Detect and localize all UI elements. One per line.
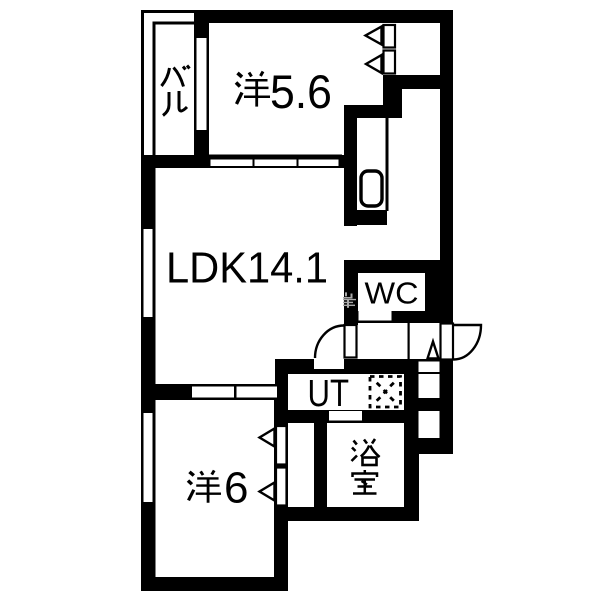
svg-text:5.6: 5.6	[270, 66, 332, 119]
svg-text:UT: UT	[308, 373, 350, 415]
svg-text:LDK14.1: LDK14.1	[166, 244, 328, 293]
svg-text:WC: WC	[365, 276, 419, 311]
svg-text:6: 6	[224, 464, 249, 513]
